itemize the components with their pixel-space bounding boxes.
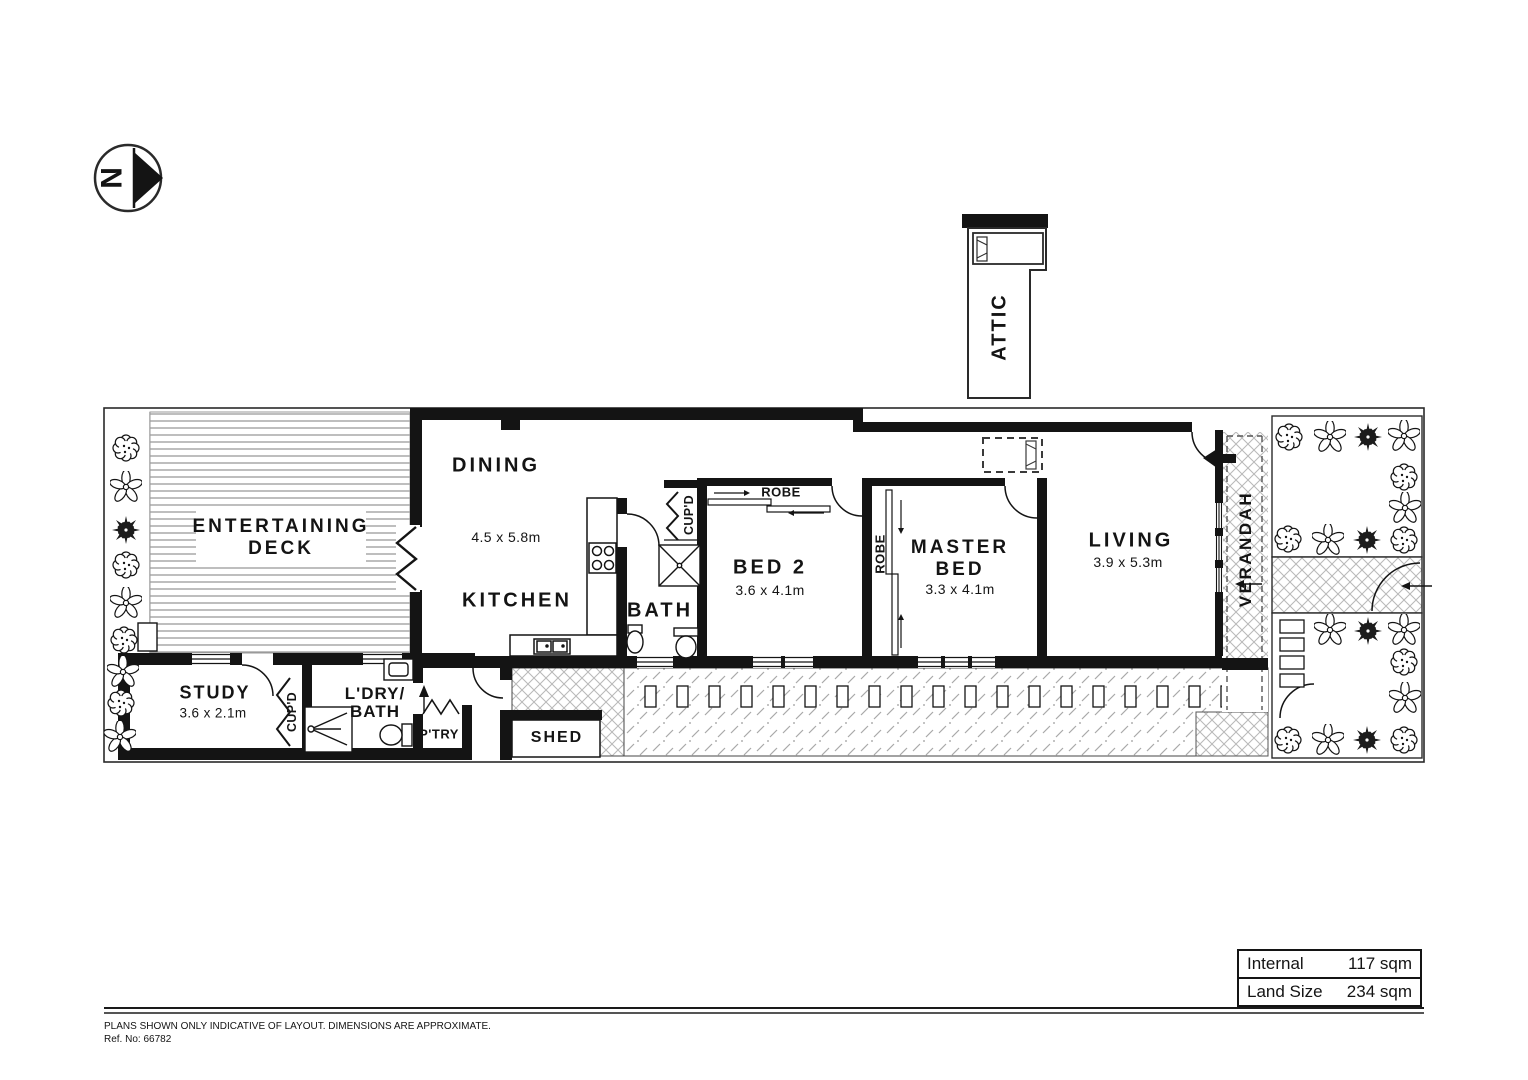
disclaimer-text: PLANS SHOWN ONLY INDICATIVE OF LAYOUT. D…	[104, 1021, 491, 1032]
laundry-label-line2: BATH	[350, 702, 400, 722]
basin-icon	[627, 625, 643, 653]
floorplan-drawing	[0, 0, 1528, 1080]
study-label: STUDY	[179, 683, 250, 704]
master-robe-label: ROBE	[873, 534, 888, 574]
side-path	[512, 668, 1268, 756]
study-cupboard-label: CUP'D	[285, 692, 299, 732]
bed2-dimension: 3.6 x 4.1m	[735, 582, 804, 598]
deck-label-line1: ENTERTAINING	[192, 516, 369, 538]
pantry-label: P'TRY	[419, 727, 459, 742]
living-label: LIVING	[1089, 530, 1174, 553]
toilet-icon	[380, 724, 412, 746]
summary-value: 117 sqm	[1348, 954, 1412, 974]
verandah-label: VERANDAH	[1236, 491, 1256, 607]
table-row: Land Size 234 sqm	[1239, 977, 1420, 1005]
table-row: Internal 117 sqm	[1239, 951, 1420, 977]
living-dimension: 3.9 x 5.3m	[1093, 554, 1162, 570]
master-label-line2: BED	[935, 559, 984, 581]
shower-icon	[659, 545, 700, 586]
summary-label: Internal	[1247, 954, 1304, 974]
toilet-icon	[674, 628, 698, 658]
north-letter: N	[93, 167, 127, 189]
corner-shower-icon	[305, 707, 352, 752]
sink-icon	[534, 639, 570, 654]
summary-label: Land Size	[1247, 982, 1323, 1002]
kitchen-label: KITCHEN	[462, 590, 572, 613]
shed-label: SHED	[531, 729, 583, 747]
footer-rule	[104, 1007, 1424, 1014]
summary-value: 234 sqm	[1347, 982, 1412, 1002]
bed2-robe-label: ROBE	[761, 485, 801, 500]
deck-label-line2: DECK	[248, 538, 314, 560]
dining-dimension: 4.5 x 5.8m	[471, 529, 540, 545]
master-label-line1: MASTER	[911, 537, 1009, 559]
reference-number: Ref. No: 66782	[104, 1034, 171, 1045]
bed2-label: BED 2	[733, 557, 807, 580]
laundry-label-line1: L'DRY/	[345, 684, 405, 704]
floorplan-page: N ATTIC ENTERTAINING DECK DINING 4.5 x 5…	[0, 0, 1528, 1080]
hall-cupboard-label: CUP'D	[682, 495, 696, 535]
bath-label: BATH	[627, 600, 693, 623]
laundry-tub-icon	[384, 659, 413, 680]
master-dimension: 3.3 x 4.1m	[925, 581, 994, 597]
area-summary-table: Internal 117 sqm Land Size 234 sqm	[1237, 949, 1422, 1007]
attic-label: ATTIC	[989, 293, 1012, 360]
dining-label: DINING	[452, 455, 540, 478]
study-dimension: 3.6 x 2.1m	[179, 706, 246, 721]
